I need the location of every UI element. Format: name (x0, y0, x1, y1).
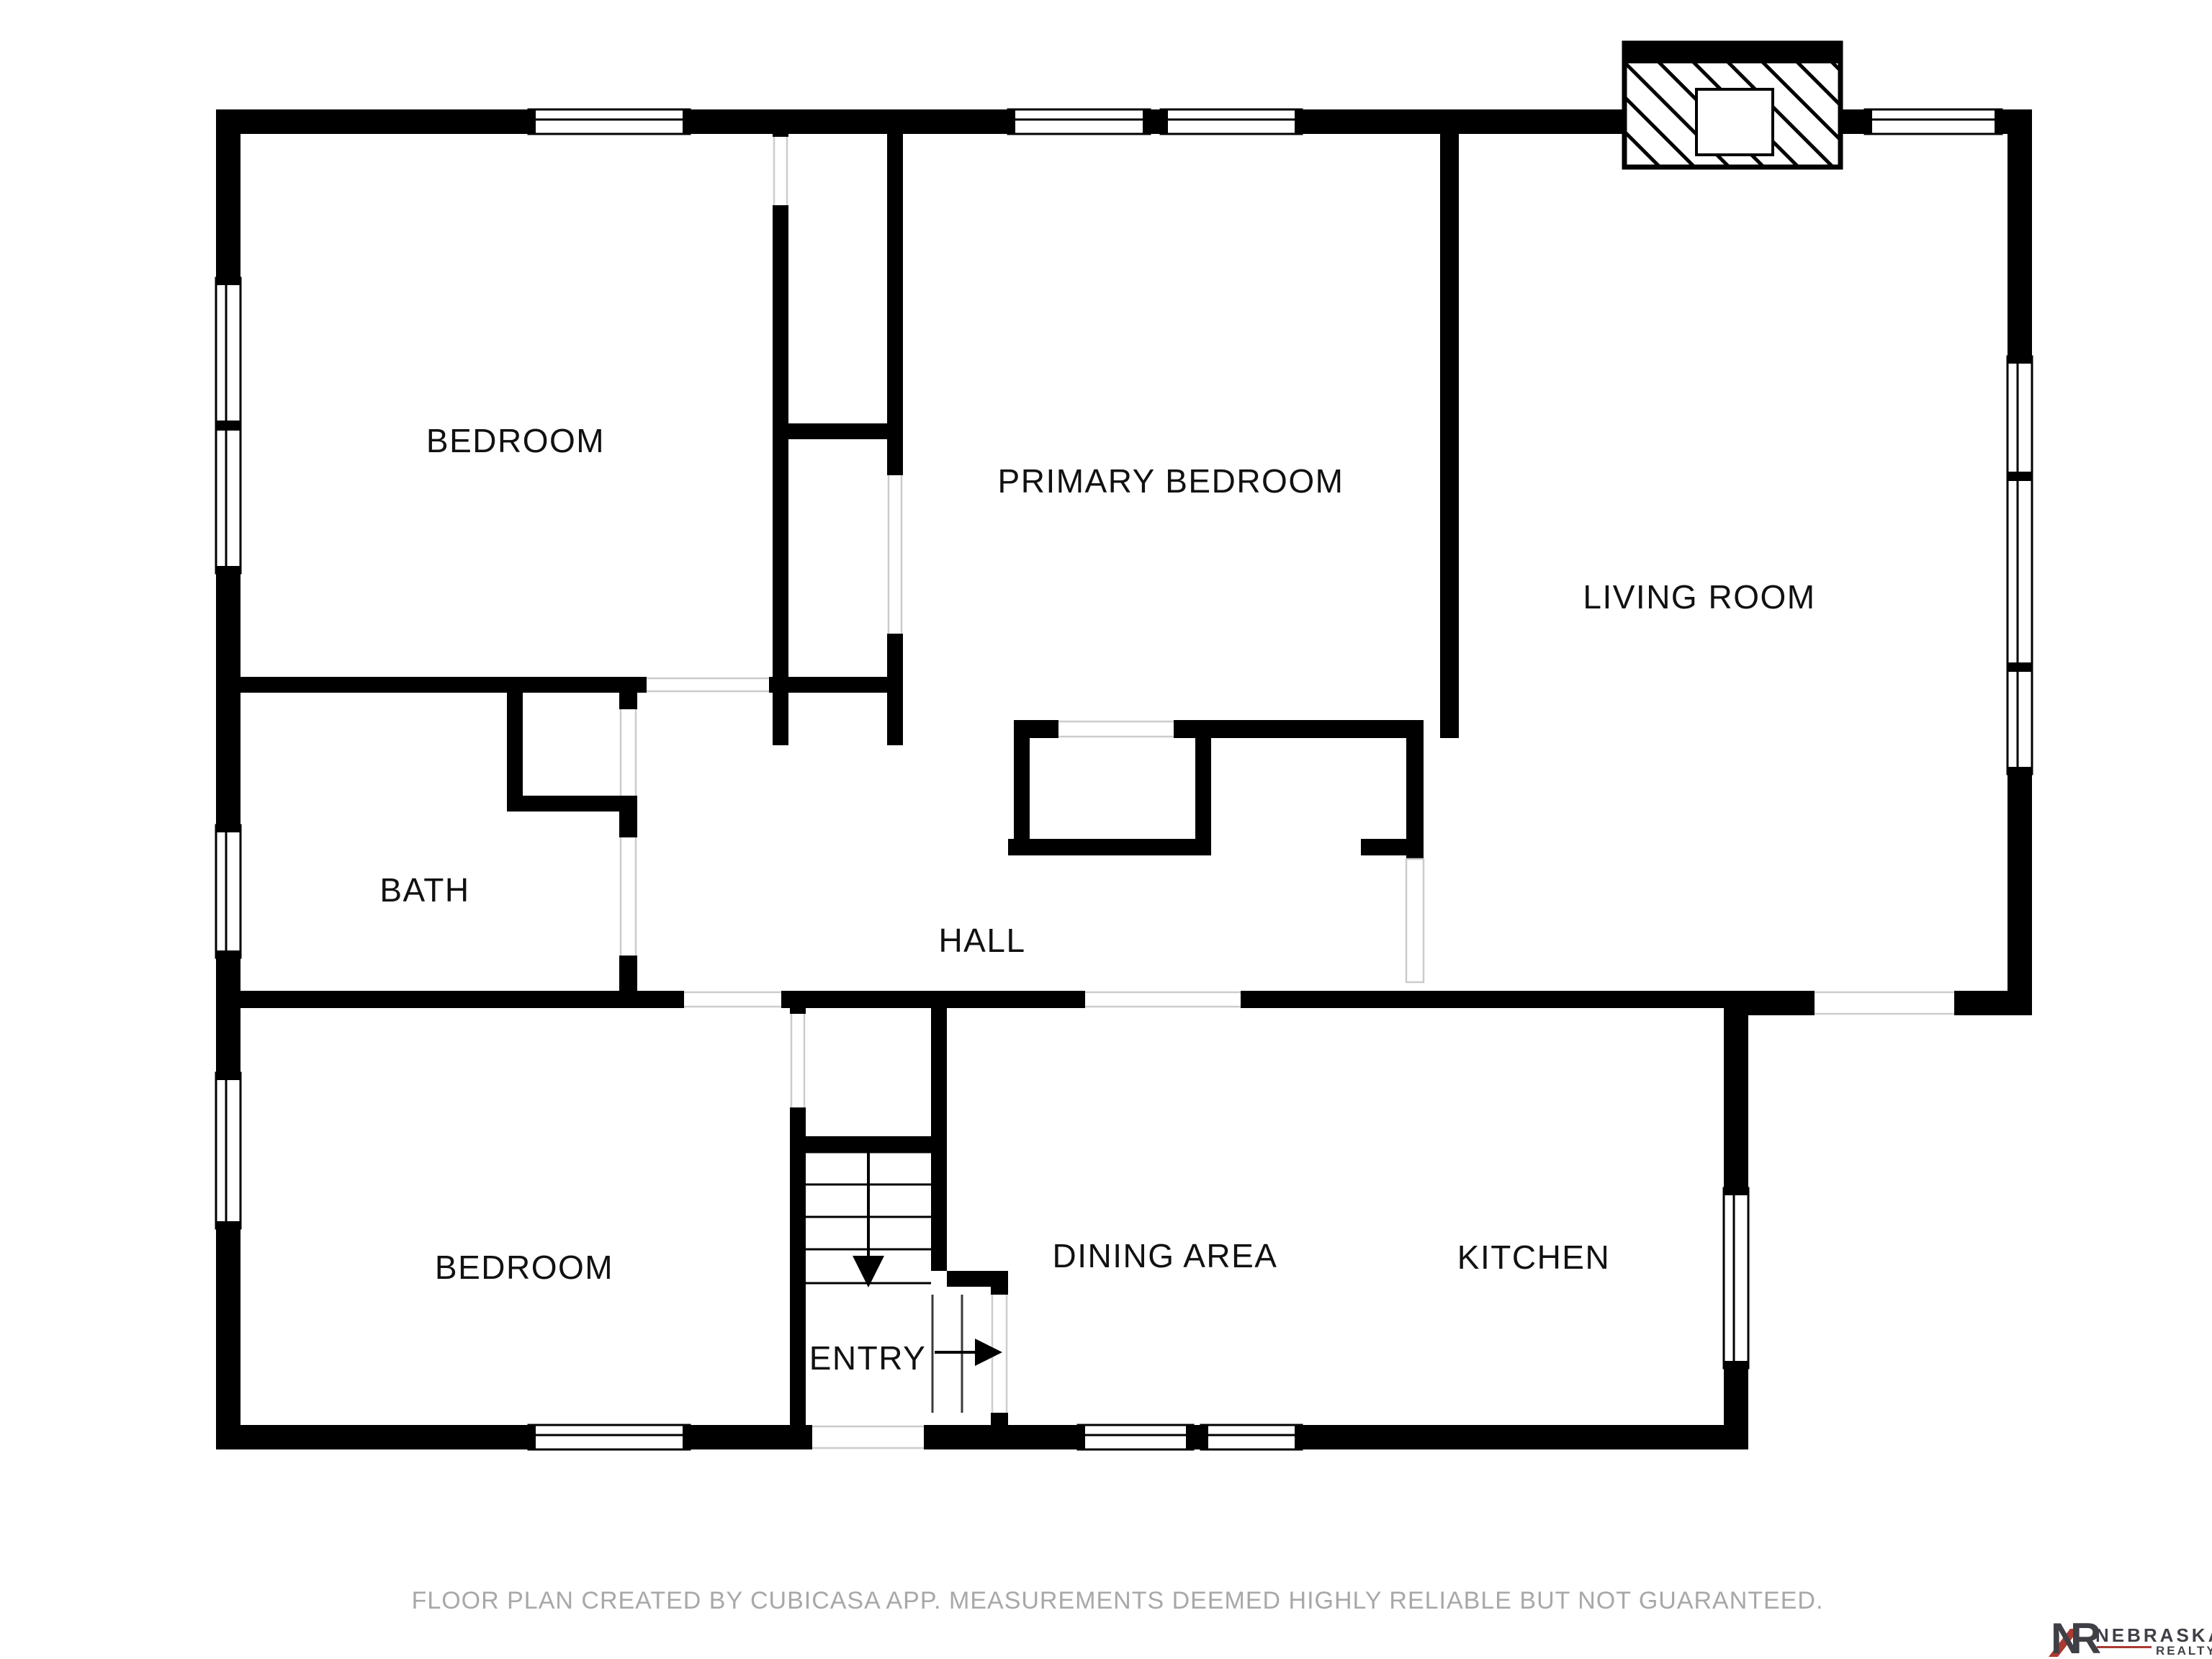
fireplace (1624, 43, 1840, 167)
room-label-bedroom-top: BEDROOM (426, 422, 605, 459)
nr-monogram-icon: N R (2049, 1614, 2101, 1659)
nebraska-realty-logo: N R NEBRASKA REALTY (2049, 1614, 2212, 1659)
logo-accent-rule (2097, 1646, 2152, 1648)
room-label-primary-bedroom: PRIMARY BEDROOM (998, 462, 1344, 500)
footer-disclaimer: FLOOR PLAN CREATED BY CUBICASA APP. MEAS… (412, 1587, 1824, 1614)
room-label-entry: ENTRY (809, 1339, 927, 1377)
bedroom1-closet-door-opening (773, 137, 788, 205)
window (1008, 109, 1150, 134)
window (216, 278, 240, 573)
room-label-hall: HALL (938, 922, 1025, 959)
window (529, 1425, 690, 1449)
front-door-opening (812, 1425, 924, 1449)
window (1078, 1425, 1193, 1449)
floor-plan-canvas: BEDROOM PRIMARY BEDROOM LIVING ROOM BATH… (0, 0, 2212, 1659)
room-label-living-room: LIVING ROOM (1583, 578, 1815, 616)
patio-door-opening (1815, 991, 1954, 1015)
window (216, 1073, 240, 1228)
room-labels: BEDROOM PRIMARY BEDROOM LIVING ROOM BATH… (379, 422, 1815, 1377)
room-label-bedroom-bottom: BEDROOM (435, 1249, 613, 1286)
bedroom2-closet-door-opening (790, 1014, 806, 1107)
hall-nook-opening (619, 709, 637, 796)
hall-living-doorway (1406, 859, 1424, 982)
fireplace-hatch (1696, 89, 1773, 155)
mid-closet-door-opening (887, 475, 903, 634)
bath-door-opening (619, 837, 637, 956)
window (216, 825, 240, 958)
logo-subtitle: REALTY (2156, 1644, 2212, 1658)
window (2008, 356, 2032, 774)
room-label-bath: BATH (379, 871, 469, 909)
window (529, 109, 690, 134)
room-label-dining-area: DINING AREA (1052, 1237, 1277, 1274)
door-openings (619, 137, 1954, 1449)
staircase (806, 1152, 931, 1287)
room-label-kitchen: KITCHEN (1457, 1238, 1610, 1276)
primary-closet-door-opening (1058, 720, 1174, 738)
logo-name: NEBRASKA (2095, 1624, 2212, 1646)
window (1865, 109, 2002, 134)
window (1724, 1188, 1748, 1368)
window (1161, 109, 1302, 134)
bedroom2-door-opening (684, 991, 781, 1008)
hall-dining-opening (1085, 991, 1241, 1008)
stairs-down-arrow (853, 1152, 884, 1287)
window (1201, 1425, 1302, 1449)
floor-plan-svg: BEDROOM PRIMARY BEDROOM LIVING ROOM BATH… (0, 0, 2212, 1659)
bedroom1-door-opening (647, 677, 769, 693)
